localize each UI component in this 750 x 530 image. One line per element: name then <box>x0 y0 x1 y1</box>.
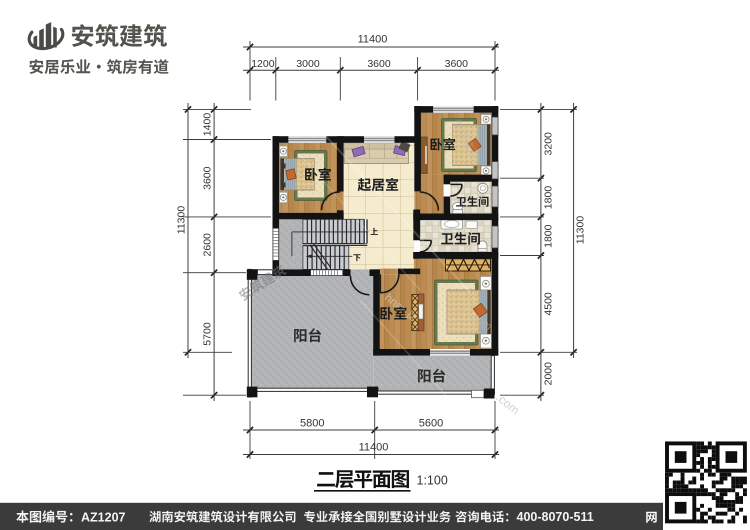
svg-text:400-8070-511: 400-8070-511 <box>517 510 594 524</box>
svg-text:11400: 11400 <box>359 442 389 454</box>
svg-text:2600: 2600 <box>202 233 214 257</box>
svg-text:11400: 11400 <box>358 34 388 46</box>
svg-text:1400: 1400 <box>202 113 214 137</box>
svg-text:1800: 1800 <box>543 224 555 248</box>
svg-text:11300: 11300 <box>176 206 188 235</box>
svg-text:11300: 11300 <box>575 216 587 245</box>
svg-text:5600: 5600 <box>419 418 443 430</box>
svg-text:4500: 4500 <box>543 292 555 316</box>
svg-text:3600: 3600 <box>367 58 391 70</box>
svg-text:3000: 3000 <box>296 58 320 70</box>
svg-text:3600: 3600 <box>202 166 214 190</box>
svg-text:5700: 5700 <box>202 322 214 346</box>
svg-text:2000: 2000 <box>543 362 555 386</box>
svg-text:5800: 5800 <box>300 418 324 430</box>
svg-text:1:100: 1:100 <box>417 474 448 488</box>
svg-text:1800: 1800 <box>543 186 555 210</box>
svg-text:3600: 3600 <box>445 58 469 70</box>
svg-text:1200: 1200 <box>251 58 275 70</box>
svg-text:AZ1207: AZ1207 <box>81 510 126 524</box>
svg-text:3200: 3200 <box>543 132 555 156</box>
